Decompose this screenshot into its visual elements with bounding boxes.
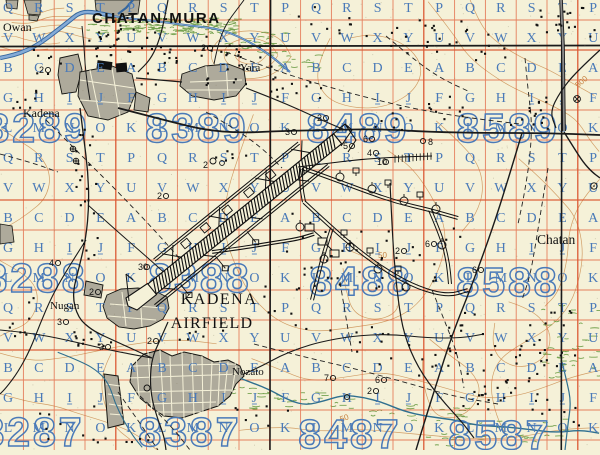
svg-text:Owan: Owan	[3, 20, 32, 34]
svg-text:W: W	[32, 181, 46, 196]
svg-text:A: A	[588, 211, 599, 226]
svg-text:D: D	[65, 211, 75, 226]
svg-text:S: S	[528, 1, 536, 16]
svg-text:P: P	[589, 1, 597, 16]
svg-text:6: 6	[472, 265, 477, 275]
svg-text:D: D	[373, 211, 383, 226]
svg-text:C: C	[342, 61, 351, 76]
svg-text:AIRFIELD: AIRFIELD	[171, 315, 253, 332]
svg-text:8487: 8487	[298, 411, 401, 450]
svg-text:V: V	[157, 31, 167, 46]
svg-text:E: E	[96, 361, 105, 376]
svg-text:R: R	[342, 1, 352, 16]
svg-text:8287: 8287	[0, 409, 85, 450]
svg-text:K: K	[280, 421, 290, 436]
svg-text:8: 8	[428, 137, 433, 147]
svg-text:V: V	[465, 181, 475, 196]
svg-text:P: P	[589, 151, 597, 166]
svg-text:T: T	[96, 151, 105, 166]
svg-text:2: 2	[89, 287, 94, 297]
svg-text:F: F	[127, 391, 135, 406]
svg-text:Q: Q	[465, 1, 475, 16]
svg-text:X: X	[65, 181, 75, 196]
svg-text:2: 2	[39, 65, 44, 75]
svg-text:O: O	[95, 121, 105, 136]
svg-text:V: V	[3, 181, 13, 196]
svg-text:8589: 8589	[456, 105, 559, 151]
svg-text:C: C	[342, 211, 351, 226]
svg-text:H: H	[34, 391, 44, 406]
svg-text:K: K	[126, 121, 136, 136]
svg-text:O: O	[95, 421, 105, 436]
svg-text:K: K	[588, 421, 598, 436]
svg-text:Chatan: Chatan	[537, 232, 575, 247]
svg-text:W: W	[32, 31, 46, 46]
svg-text:A: A	[126, 361, 137, 376]
svg-text:S: S	[374, 1, 382, 16]
svg-text:R: R	[188, 151, 198, 166]
svg-text:D: D	[65, 61, 75, 76]
svg-text:P: P	[281, 301, 289, 316]
svg-text:E: E	[404, 361, 413, 376]
svg-text:V: V	[465, 331, 475, 346]
svg-text:Q: Q	[3, 301, 13, 316]
svg-text:R: R	[496, 1, 506, 16]
svg-text:O: O	[557, 421, 567, 436]
svg-text:R: R	[34, 301, 44, 316]
svg-text:S: S	[66, 151, 74, 166]
svg-text:D: D	[65, 361, 75, 376]
svg-text:P: P	[435, 151, 443, 166]
svg-text:H: H	[188, 91, 198, 106]
svg-text:X: X	[219, 331, 229, 346]
svg-text:30: 30	[138, 262, 148, 272]
svg-text:A: A	[434, 61, 445, 76]
svg-text:K: K	[280, 271, 290, 286]
svg-text:A: A	[126, 61, 137, 76]
svg-text:H: H	[342, 391, 352, 406]
svg-text:2: 2	[201, 43, 206, 53]
svg-text:O: O	[95, 271, 105, 286]
svg-text:U: U	[280, 331, 290, 346]
svg-text:8587: 8587	[448, 412, 551, 450]
svg-text:V: V	[311, 31, 321, 46]
svg-text:E: E	[558, 361, 567, 376]
svg-text:Nugan: Nugan	[50, 300, 80, 312]
svg-text:P: P	[435, 1, 443, 16]
svg-text:P: P	[589, 301, 597, 316]
svg-text:E: E	[404, 61, 413, 76]
svg-text:A: A	[126, 211, 137, 226]
svg-text:Q: Q	[3, 151, 13, 166]
svg-text:U: U	[126, 31, 136, 46]
svg-text:8288: 8288	[0, 255, 88, 301]
svg-text:H: H	[496, 91, 506, 106]
svg-text:B: B	[3, 61, 12, 76]
svg-text:U: U	[588, 31, 598, 46]
svg-text:G: G	[465, 391, 475, 406]
svg-text:X: X	[65, 331, 75, 346]
svg-text:W: W	[494, 331, 508, 346]
svg-text:B: B	[3, 361, 12, 376]
svg-text:X: X	[527, 31, 537, 46]
svg-text:W: W	[494, 31, 508, 46]
svg-text:10: 10	[377, 157, 387, 167]
svg-text:U: U	[280, 31, 290, 46]
svg-text:B: B	[311, 61, 320, 76]
svg-text:B: B	[465, 61, 474, 76]
svg-text:O: O	[403, 421, 413, 436]
svg-text:E: E	[96, 61, 105, 76]
svg-text:B: B	[3, 211, 12, 226]
svg-text:C: C	[34, 211, 43, 226]
svg-text:X: X	[373, 331, 383, 346]
svg-text:W: W	[186, 181, 200, 196]
svg-text:C: C	[188, 211, 197, 226]
svg-text:G: G	[157, 391, 167, 406]
svg-text:Y: Y	[557, 331, 567, 346]
svg-text:D: D	[219, 361, 229, 376]
svg-text:S: S	[220, 1, 228, 16]
svg-text:4: 4	[367, 148, 372, 158]
svg-text:H: H	[496, 241, 506, 256]
svg-text:S: S	[66, 1, 74, 16]
svg-text:U: U	[126, 181, 136, 196]
svg-text:Y: Y	[403, 181, 413, 196]
svg-text:P: P	[127, 151, 135, 166]
svg-text:K: K	[126, 421, 136, 436]
svg-text:H: H	[188, 391, 198, 406]
svg-text:D: D	[527, 61, 537, 76]
svg-text:A: A	[588, 61, 599, 76]
svg-text:U: U	[126, 331, 136, 346]
svg-text:R: R	[496, 151, 506, 166]
svg-text:B: B	[157, 361, 166, 376]
svg-text:T: T	[250, 151, 259, 166]
svg-text:8488: 8488	[309, 258, 412, 304]
svg-text:H: H	[34, 241, 44, 256]
svg-text:2: 2	[317, 113, 322, 123]
svg-text:V: V	[3, 331, 13, 346]
svg-text:C: C	[188, 361, 197, 376]
svg-text:S: S	[220, 151, 228, 166]
svg-text:P: P	[281, 1, 289, 16]
svg-text:V: V	[465, 31, 475, 46]
svg-text:R: R	[34, 1, 44, 16]
svg-text:B: B	[157, 211, 166, 226]
svg-text:C: C	[34, 361, 43, 376]
svg-text:B: B	[465, 211, 474, 226]
svg-text:K: K	[434, 121, 444, 136]
svg-text:3: 3	[99, 342, 104, 352]
svg-text:Y: Y	[249, 31, 259, 46]
svg-text:Kadena: Kadena	[23, 106, 60, 120]
svg-text:F: F	[589, 241, 597, 256]
svg-text:O: O	[249, 121, 259, 136]
svg-text:F: F	[589, 91, 597, 106]
svg-text:Yara: Yara	[240, 62, 260, 74]
svg-text:F: F	[435, 91, 443, 106]
svg-text:F: F	[127, 91, 135, 106]
svg-text:G: G	[465, 241, 475, 256]
svg-text:A: A	[280, 211, 291, 226]
svg-text:6: 6	[425, 239, 430, 249]
svg-text:KADENA: KADENA	[181, 291, 258, 308]
svg-text:6: 6	[363, 134, 368, 144]
svg-text:D: D	[527, 211, 537, 226]
svg-text:Q: Q	[3, 1, 13, 16]
svg-text:Q: Q	[157, 301, 167, 316]
svg-text:K: K	[434, 421, 444, 436]
svg-text:T: T	[96, 301, 105, 316]
svg-text:T: T	[404, 1, 413, 16]
svg-text:A: A	[588, 361, 599, 376]
svg-text:Q: Q	[465, 151, 475, 166]
svg-text:A: A	[280, 361, 291, 376]
svg-text:X: X	[65, 31, 75, 46]
svg-text:2: 2	[147, 336, 152, 346]
svg-text:U: U	[588, 331, 598, 346]
svg-text:R: R	[342, 151, 352, 166]
svg-text:T: T	[250, 1, 259, 16]
svg-text:3: 3	[285, 127, 290, 137]
svg-text:G: G	[311, 391, 321, 406]
svg-text:6: 6	[375, 375, 380, 385]
svg-text:Y: Y	[557, 181, 567, 196]
svg-text:5: 5	[343, 141, 348, 151]
svg-text:D: D	[527, 361, 537, 376]
svg-text:C: C	[496, 61, 505, 76]
svg-text:G: G	[465, 91, 475, 106]
svg-text:C: C	[342, 361, 351, 376]
svg-text:U: U	[434, 181, 444, 196]
svg-text:T: T	[558, 151, 567, 166]
svg-text:W: W	[340, 31, 354, 46]
svg-text:CHATAN-MURA: CHATAN-MURA	[92, 10, 221, 27]
svg-text:F: F	[589, 391, 597, 406]
svg-text:G: G	[311, 241, 321, 256]
svg-text:X: X	[527, 181, 537, 196]
svg-text:2: 2	[157, 191, 162, 201]
svg-text:B: B	[311, 361, 320, 376]
svg-text:Nozato: Nozato	[232, 366, 264, 378]
svg-text:G: G	[157, 91, 167, 106]
svg-text:C: C	[496, 361, 505, 376]
svg-text:G: G	[3, 91, 13, 106]
svg-text:Q: Q	[311, 1, 321, 16]
svg-text:Y: Y	[403, 31, 413, 46]
svg-text:G: G	[3, 391, 13, 406]
svg-text:X: X	[373, 31, 383, 46]
svg-text:Q: Q	[157, 151, 167, 166]
svg-text:G: G	[3, 241, 13, 256]
svg-text:2: 2	[395, 246, 400, 256]
svg-text:E: E	[558, 211, 567, 226]
svg-text:K: K	[588, 271, 598, 286]
svg-text:4: 4	[49, 258, 54, 268]
svg-text:X: X	[219, 181, 229, 196]
svg-text:F: F	[281, 391, 289, 406]
svg-text:V: V	[311, 181, 321, 196]
svg-text:7: 7	[324, 373, 329, 383]
svg-text:2: 2	[203, 160, 208, 170]
svg-text:E: E	[404, 211, 413, 226]
svg-text:W: W	[186, 31, 200, 46]
svg-text:2: 2	[367, 386, 372, 396]
svg-text:W: W	[340, 331, 354, 346]
svg-text:O: O	[249, 421, 259, 436]
svg-text:D: D	[373, 61, 383, 76]
svg-text:3: 3	[57, 317, 62, 327]
